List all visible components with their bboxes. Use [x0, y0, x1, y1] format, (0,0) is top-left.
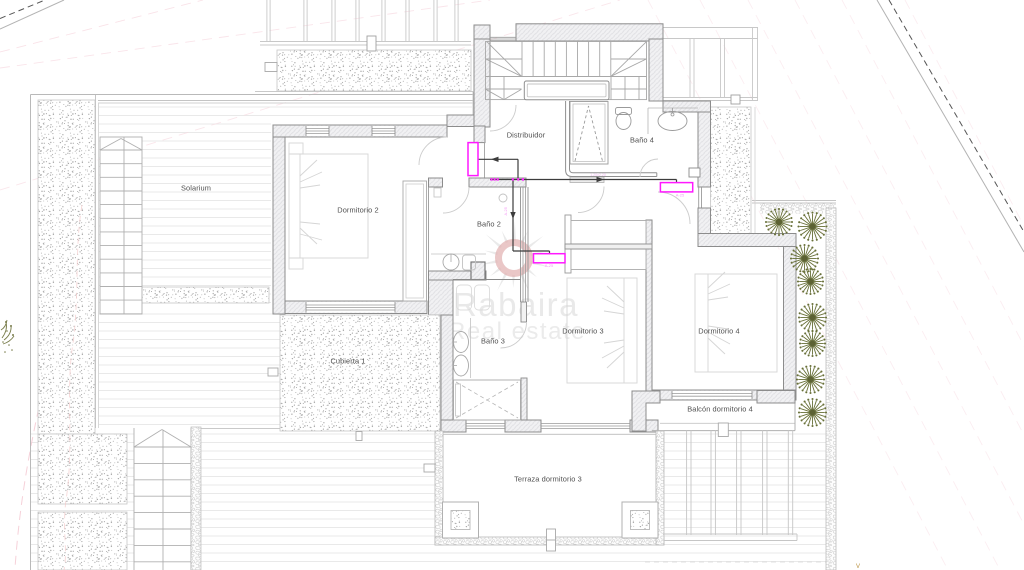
svg-text:V: V	[856, 564, 860, 570]
svg-text:Baño 2: Baño 2	[477, 220, 501, 229]
svg-text:A-25: A-25	[503, 206, 508, 215]
svg-text:Balcón dormitorio 4: Balcón dormitorio 4	[687, 405, 753, 414]
svg-text:Dormitorio 4: Dormitorio 4	[698, 327, 739, 336]
svg-text:A-25: A-25	[676, 193, 685, 198]
svg-text:A-25: A-25	[545, 263, 554, 268]
svg-text:Distribuidor: Distribuidor	[507, 131, 546, 140]
svg-text:Solarium: Solarium	[181, 184, 211, 193]
svg-text:Dormitorio 3: Dormitorio 3	[562, 327, 603, 336]
svg-text:Baño 4: Baño 4	[630, 136, 654, 145]
svg-text:Terraza dormitorio 3: Terraza dormitorio 3	[514, 475, 582, 484]
svg-text:Baño 3: Baño 3	[481, 337, 505, 346]
svg-text:Cubierta 1: Cubierta 1	[330, 357, 365, 366]
svg-text:1.20x2.20: 1.20x2.20	[590, 173, 606, 177]
svg-text:Dormitorio 2: Dormitorio 2	[337, 206, 378, 215]
